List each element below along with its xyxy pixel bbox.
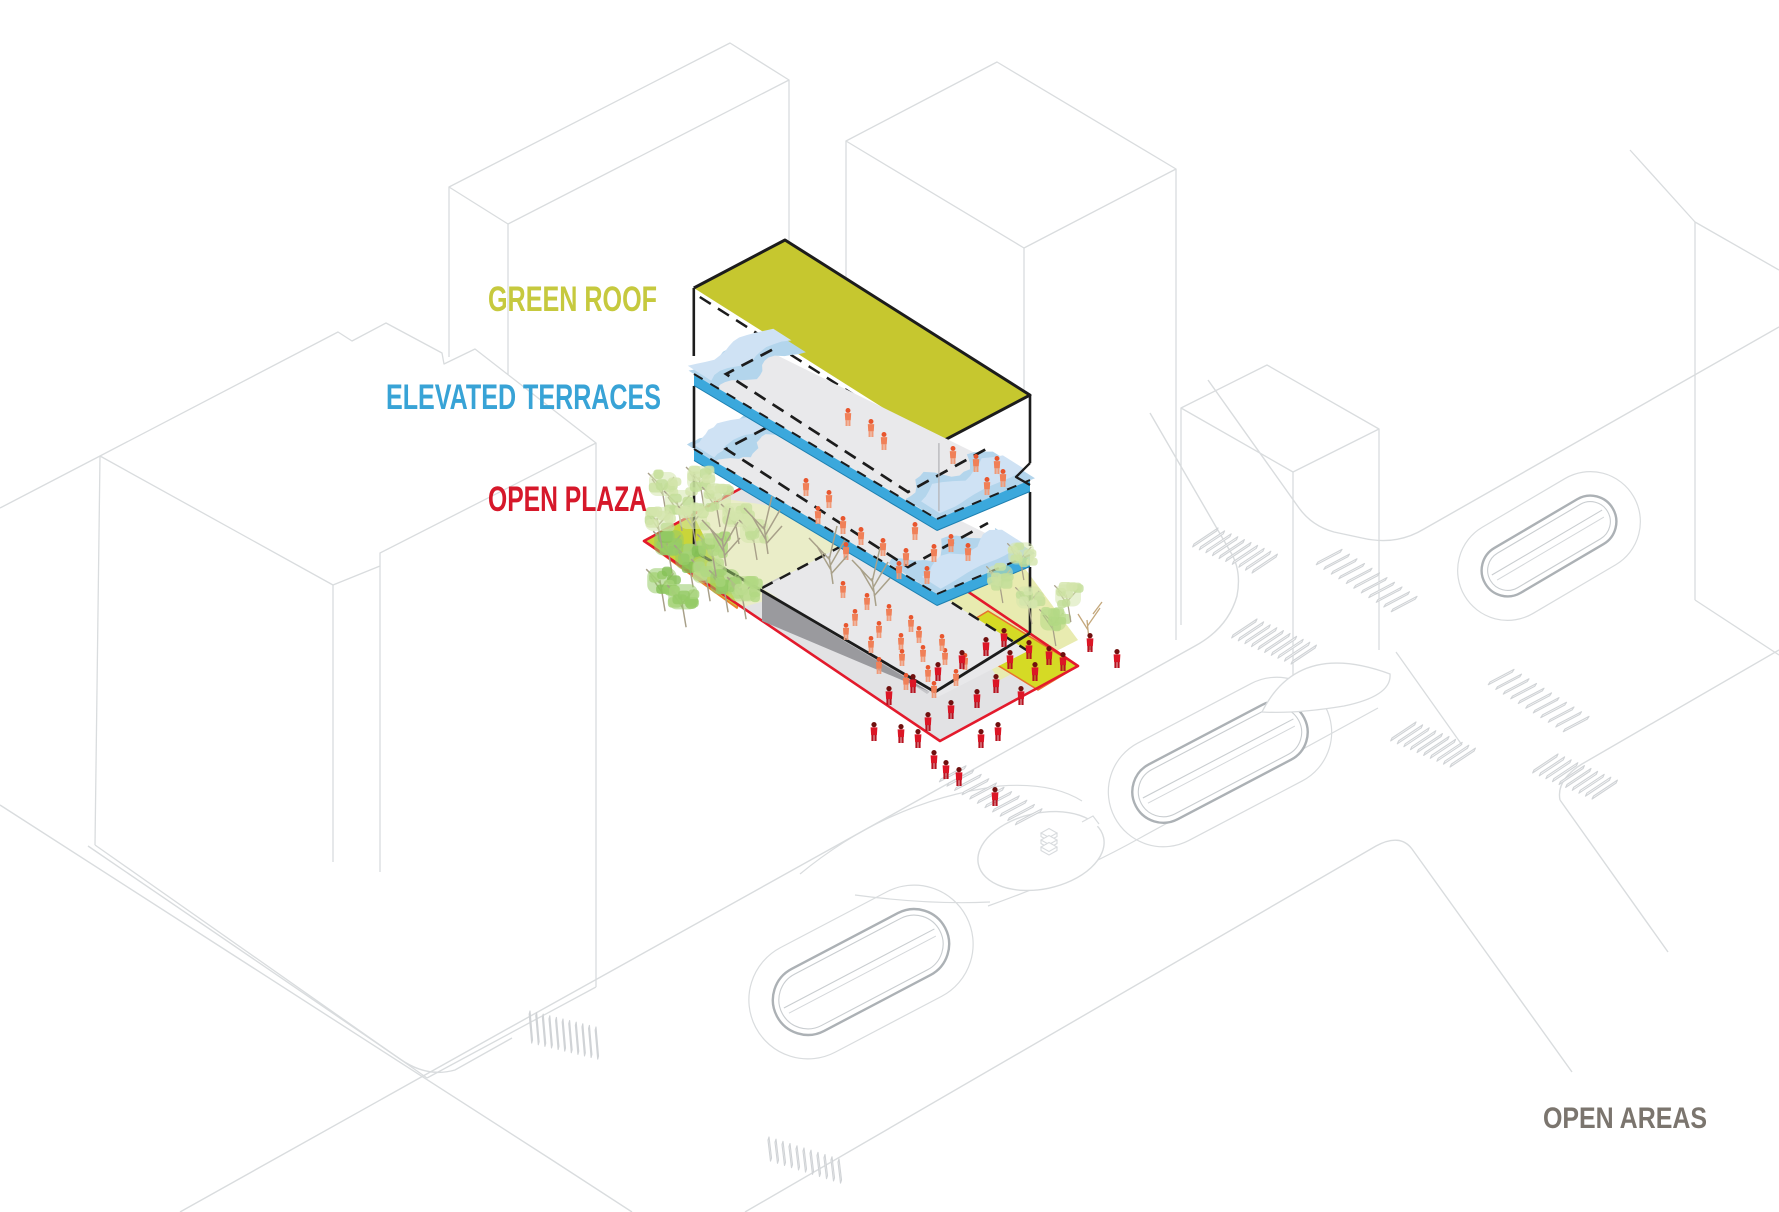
svg-text:GREEN ROOF: GREEN ROOF <box>488 280 657 319</box>
svg-text:OPEN PLAZA: OPEN PLAZA <box>488 480 647 519</box>
svg-text:ELEVATED TERRACES: ELEVATED TERRACES <box>386 378 661 417</box>
svg-text:OPEN AREAS: OPEN AREAS <box>1543 1102 1707 1135</box>
